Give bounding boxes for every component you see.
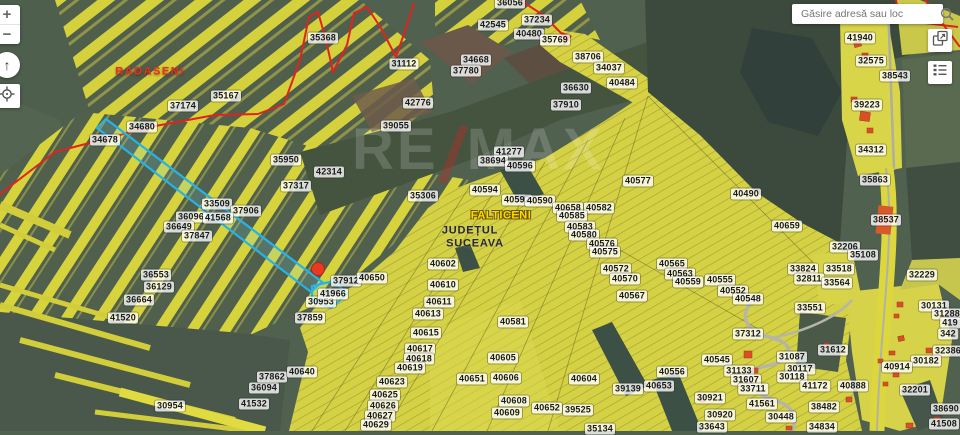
location-pin[interactable] bbox=[312, 263, 325, 276]
search-box[interactable] bbox=[792, 4, 943, 24]
basemap-icon bbox=[932, 30, 949, 52]
legend-button[interactable] bbox=[928, 61, 952, 84]
crosshair-icon bbox=[0, 86, 15, 107]
basemap-button[interactable] bbox=[928, 29, 952, 52]
legend-list-icon bbox=[932, 62, 948, 83]
north-arrow-icon: ↑ bbox=[4, 57, 11, 73]
zoom-out-button[interactable]: − bbox=[0, 25, 20, 44]
search-input[interactable] bbox=[799, 7, 938, 21]
search-icon[interactable] bbox=[938, 6, 956, 22]
locate-button[interactable] bbox=[0, 84, 20, 108]
zoom-panel: + − bbox=[0, 5, 20, 44]
map-canvas[interactable] bbox=[0, 0, 960, 431]
map-root: RE/MAX RADASENIFALTICENIJUDEȚULSUCEAVA35… bbox=[0, 0, 960, 431]
zoom-in-button[interactable]: + bbox=[0, 5, 20, 24]
